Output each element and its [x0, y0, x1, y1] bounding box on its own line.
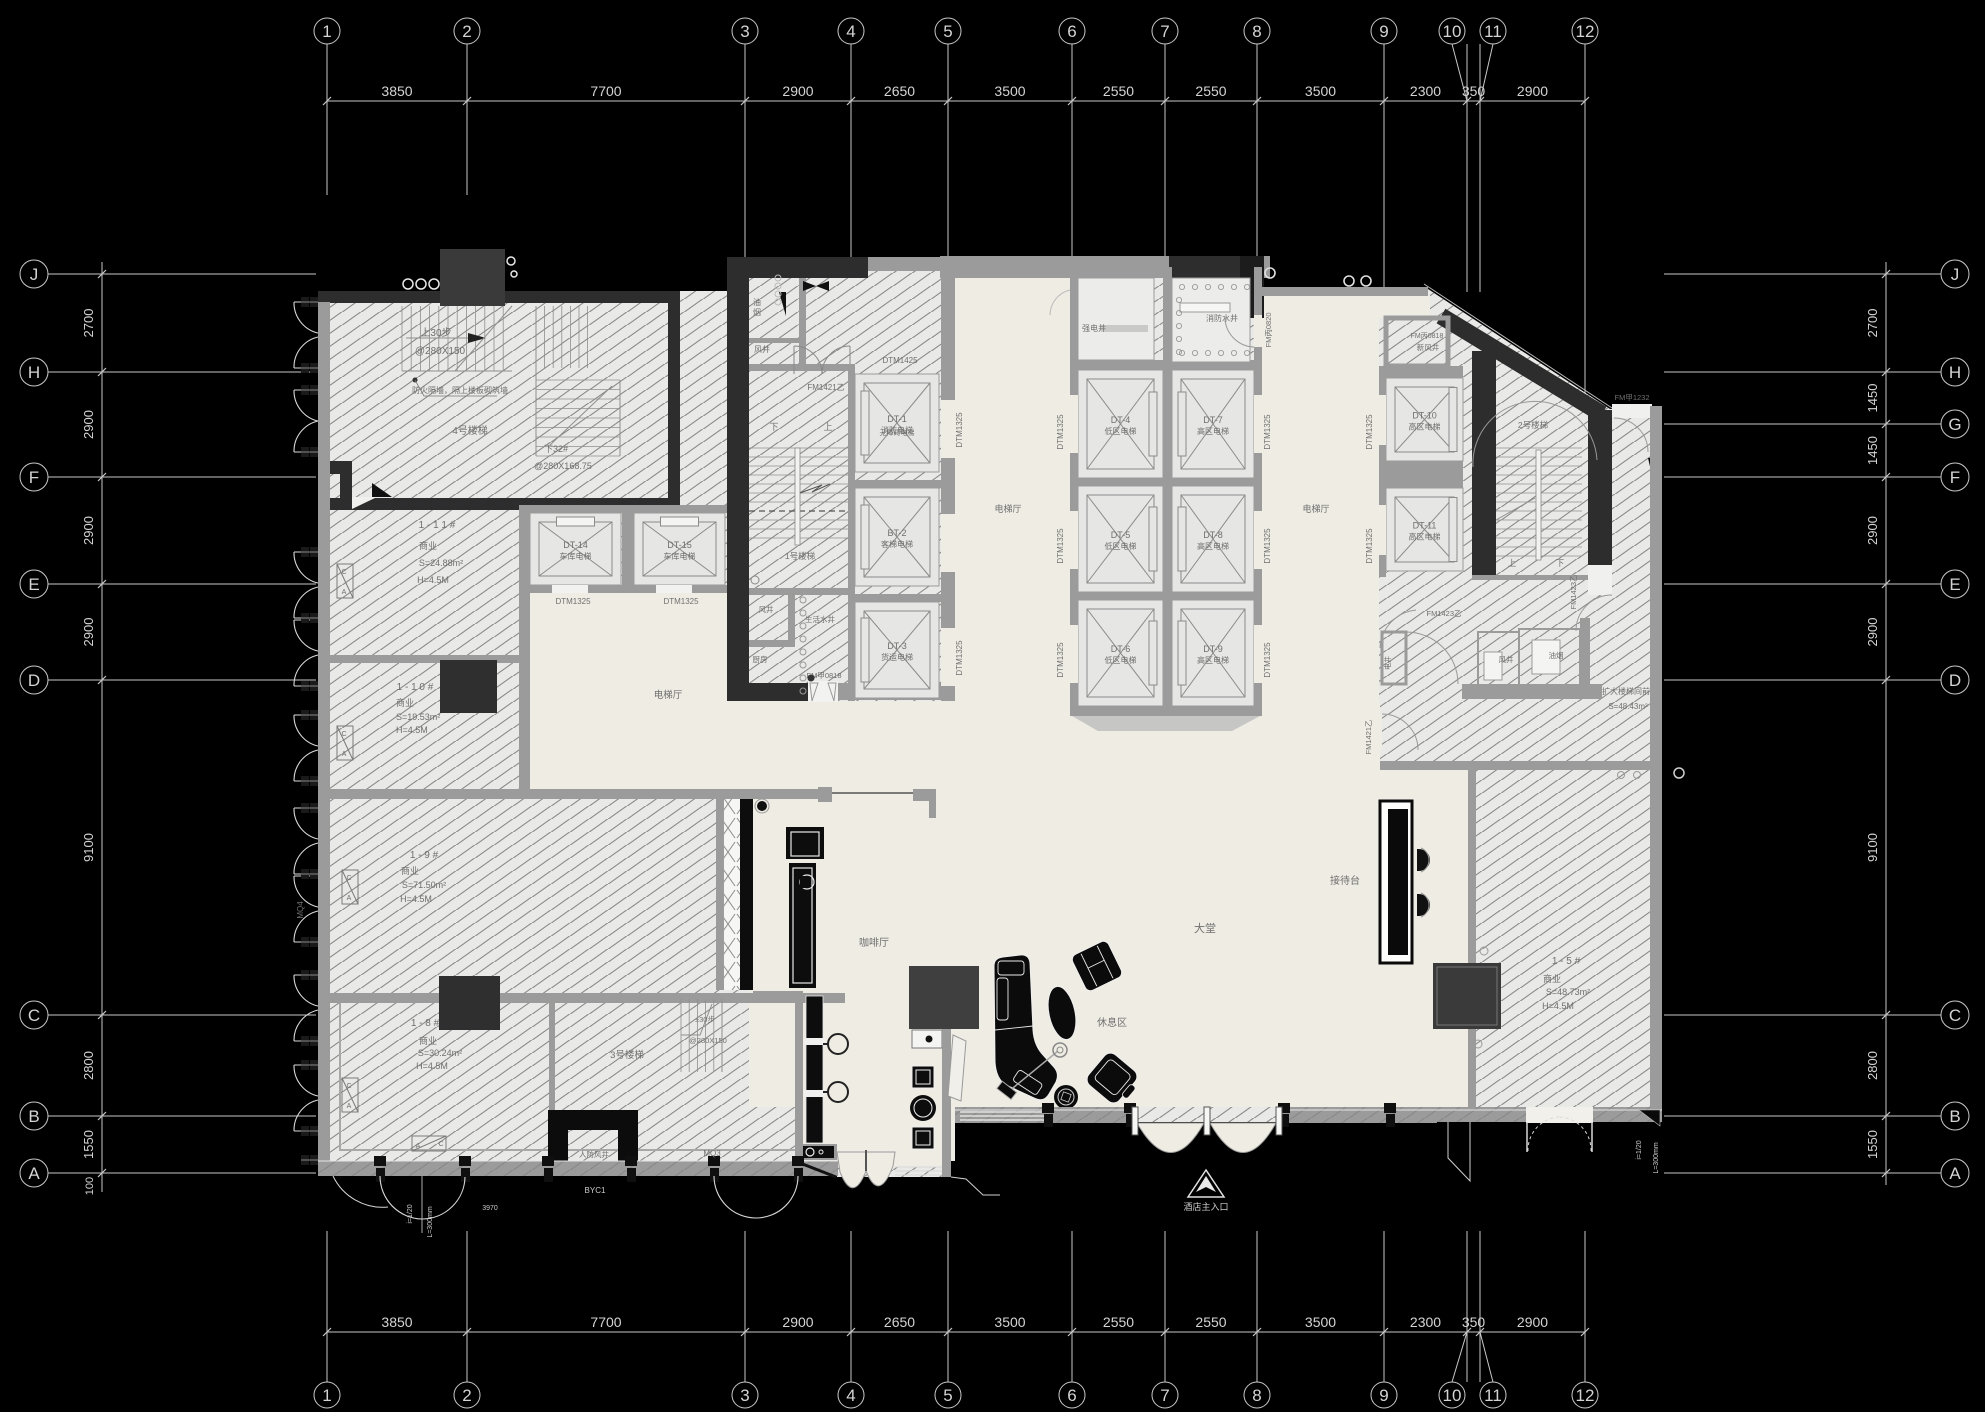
svg-text:11: 11 — [1484, 1386, 1502, 1405]
svg-text:DTM1325: DTM1325 — [955, 412, 964, 448]
svg-text:H=4.5M: H=4.5M — [416, 1061, 448, 1071]
svg-text:DT-14: DT-14 — [563, 540, 588, 550]
svg-text:J: J — [30, 265, 39, 284]
svg-text:电梯厅: 电梯厅 — [994, 503, 1021, 514]
svg-text:2900: 2900 — [1865, 516, 1880, 545]
svg-text:DT-1: DT-1 — [887, 414, 907, 424]
svg-text:商业: 商业 — [419, 540, 437, 551]
svg-text:商业: 商业 — [419, 1035, 437, 1046]
svg-text:6: 6 — [1067, 22, 1076, 41]
svg-text:上30步: 上30步 — [420, 327, 451, 339]
svg-text:生活水井: 生活水井 — [805, 614, 835, 624]
svg-text:FM1421乙: FM1421乙 — [807, 383, 844, 392]
svg-text:车库电梯: 车库电梯 — [560, 551, 592, 561]
svg-text:A: A — [347, 1103, 352, 1110]
svg-text:DTM1325: DTM1325 — [663, 597, 699, 606]
svg-text:FM丙0818: FM丙0818 — [1411, 332, 1444, 340]
svg-text:上: 上 — [823, 422, 832, 432]
svg-text:S=48.43m²: S=48.43m² — [1608, 702, 1648, 711]
svg-text:低区电梯: 低区电梯 — [1105, 541, 1137, 551]
svg-text:高区电梯: 高区电梯 — [1409, 532, 1441, 542]
svg-text:防火隔墙，隔上楼板砌筑墙: 防火隔墙，隔上楼板砌筑墙 — [412, 385, 508, 395]
svg-text:7700: 7700 — [590, 83, 621, 99]
svg-text:2650: 2650 — [884, 83, 915, 99]
svg-text:风井: 风井 — [1499, 654, 1515, 664]
svg-text:2700: 2700 — [81, 309, 96, 338]
svg-text:DT-4: DT-4 — [1111, 415, 1131, 425]
svg-text:DTM1325: DTM1325 — [1365, 414, 1374, 450]
svg-text:7: 7 — [1160, 1386, 1169, 1405]
svg-text:MQ4: MQ4 — [296, 901, 305, 919]
svg-text:@280X168.75: @280X168.75 — [534, 461, 592, 471]
svg-text:2650: 2650 — [884, 1314, 915, 1330]
svg-text:C: C — [346, 1083, 351, 1090]
svg-text:FM甲1232: FM甲1232 — [1614, 393, 1649, 402]
svg-text:下: 下 — [769, 422, 778, 432]
svg-text:E: E — [1949, 575, 1960, 594]
svg-text:电梯厅: 电梯厅 — [1302, 503, 1329, 514]
svg-text:2800: 2800 — [81, 1051, 96, 1080]
svg-text:商业: 商业 — [396, 697, 414, 708]
svg-text:上: 上 — [1508, 558, 1517, 568]
svg-text:货运电梯: 货运电梯 — [881, 652, 913, 662]
svg-text:消防水井: 消防水井 — [1206, 313, 1238, 323]
svg-text:接待台: 接待台 — [1330, 874, 1360, 887]
svg-text:1号楼梯: 1号楼梯 — [785, 551, 816, 561]
svg-text:3: 3 — [740, 1386, 749, 1405]
svg-text:F: F — [29, 468, 39, 487]
svg-text:8: 8 — [1252, 1386, 1261, 1405]
svg-text:4: 4 — [846, 22, 855, 41]
svg-text:9100: 9100 — [81, 833, 96, 862]
svg-text:D: D — [28, 671, 40, 690]
svg-text:DTM1325: DTM1325 — [1056, 528, 1065, 564]
svg-text:4号楼梯: 4号楼梯 — [452, 424, 488, 437]
svg-text:无障碍电梯: 无障碍电梯 — [880, 428, 915, 437]
svg-text:电井: 电井 — [1383, 656, 1392, 670]
svg-text:A: A — [1949, 1164, 1961, 1183]
svg-text:2: 2 — [462, 22, 471, 41]
svg-text:H=4.5M: H=4.5M — [417, 575, 449, 585]
svg-text:1 - 1 0 #: 1 - 1 0 # — [397, 682, 434, 693]
svg-text:烟: 烟 — [753, 308, 761, 317]
svg-text:2: 2 — [462, 1386, 471, 1405]
svg-text:3850: 3850 — [381, 83, 412, 99]
svg-text:DTM1325: DTM1325 — [1365, 528, 1374, 564]
svg-text:2900: 2900 — [782, 1314, 813, 1330]
svg-text:DTM1325: DTM1325 — [1056, 414, 1065, 450]
svg-text:S=30.24m²: S=30.24m² — [418, 1048, 462, 1058]
svg-text:2900: 2900 — [1517, 83, 1548, 99]
svg-text:8: 8 — [1252, 22, 1261, 41]
svg-text:低区电梯: 低区电梯 — [1105, 426, 1137, 436]
svg-text:商业: 商业 — [401, 865, 419, 876]
svg-text:5: 5 — [943, 1386, 952, 1405]
svg-text:11: 11 — [1484, 22, 1502, 41]
svg-text:DTM1325: DTM1325 — [1263, 642, 1272, 678]
svg-text:S=19.53m²: S=19.53m² — [396, 712, 440, 722]
svg-text:DTM1325: DTM1325 — [1263, 528, 1272, 564]
svg-text:DT-7: DT-7 — [1203, 415, 1223, 425]
svg-text:L=300mm: L=300mm — [427, 1206, 434, 1237]
svg-text:扩大楼梯间前室: 扩大楼梯间前室 — [1602, 686, 1658, 696]
svg-text:J: J — [1951, 265, 1960, 284]
svg-text:1 - 5 #: 1 - 5 # — [1552, 956, 1581, 967]
svg-text:咖啡厅: 咖啡厅 — [859, 937, 889, 949]
svg-text:下: 下 — [1556, 558, 1565, 568]
svg-text:2300: 2300 — [1410, 1314, 1441, 1330]
svg-text:7700: 7700 — [590, 1314, 621, 1330]
svg-text:2900: 2900 — [81, 516, 96, 545]
svg-text:C: C — [1949, 1006, 1961, 1025]
svg-text:E: E — [28, 575, 39, 594]
svg-text:D: D — [1949, 671, 1961, 690]
svg-text:油烟: 油烟 — [1549, 650, 1564, 660]
svg-text:2550: 2550 — [1195, 83, 1226, 99]
svg-text:1: 1 — [322, 22, 331, 41]
svg-text:风井: 风井 — [754, 344, 770, 354]
svg-text:10: 10 — [1443, 1386, 1462, 1405]
svg-text:下32#: 下32# — [544, 444, 568, 454]
svg-text:±30步: ±30步 — [695, 1015, 715, 1024]
svg-text:高区电梯: 高区电梯 — [1197, 426, 1229, 436]
svg-text:FM1423乙: FM1423乙 — [1426, 609, 1462, 618]
svg-text:C: C — [341, 731, 346, 738]
svg-text:3850: 3850 — [381, 1314, 412, 1330]
svg-text:B: B — [28, 1107, 39, 1126]
svg-text:1 - 1 1 #: 1 - 1 1 # — [419, 520, 456, 531]
svg-text:C: C — [341, 569, 346, 576]
svg-text:F: F — [1950, 468, 1960, 487]
svg-text:3号楼梯: 3号楼梯 — [610, 1049, 644, 1061]
svg-text:油: 油 — [753, 297, 761, 307]
svg-text:3500: 3500 — [994, 1314, 1025, 1330]
svg-text:1: 1 — [322, 1386, 331, 1405]
svg-text:电梯厅: 电梯厅 — [654, 689, 683, 701]
svg-text:2900: 2900 — [1865, 618, 1880, 647]
svg-text:高区电梯: 高区电梯 — [1197, 655, 1229, 665]
svg-text:4: 4 — [846, 1386, 855, 1405]
svg-text:3500: 3500 — [1305, 1314, 1336, 1330]
svg-text:2550: 2550 — [1103, 1314, 1134, 1330]
svg-text:350: 350 — [1462, 1314, 1486, 1330]
svg-text:DTM1425: DTM1425 — [882, 356, 918, 365]
svg-text:A: A — [342, 751, 347, 758]
svg-text:2号楼梯: 2号楼梯 — [1518, 420, 1549, 430]
svg-text:100: 100 — [84, 1177, 96, 1195]
svg-text:S=48.73m²: S=48.73m² — [1546, 987, 1590, 997]
svg-text:1 - 8 #: 1 - 8 # — [411, 1018, 440, 1029]
svg-text:3500: 3500 — [994, 83, 1025, 99]
svg-text:1550: 1550 — [81, 1130, 96, 1159]
svg-text:@280X150: @280X150 — [415, 346, 466, 357]
svg-text:@280X150: @280X150 — [689, 1036, 727, 1045]
svg-text:10: 10 — [1443, 22, 1462, 41]
svg-text:3: 3 — [740, 22, 749, 41]
svg-text:9: 9 — [1379, 22, 1388, 41]
svg-text:2900: 2900 — [81, 618, 96, 647]
svg-text:C: C — [346, 875, 351, 882]
svg-text:FM丙0820: FM丙0820 — [1264, 312, 1273, 347]
svg-text:2550: 2550 — [1103, 83, 1134, 99]
svg-text:DTM1325: DTM1325 — [1056, 642, 1065, 678]
svg-text:7: 7 — [1160, 22, 1169, 41]
svg-text:6: 6 — [1067, 1386, 1076, 1405]
svg-text:DTM1325: DTM1325 — [555, 597, 591, 606]
svg-text:休息区: 休息区 — [1097, 1016, 1127, 1029]
svg-text:A: A — [416, 1143, 421, 1150]
svg-text:1550: 1550 — [1865, 1130, 1880, 1159]
svg-text:H: H — [28, 363, 40, 382]
svg-text:H=4.5M: H=4.5M — [400, 894, 432, 904]
svg-text:新风井: 新风井 — [1417, 342, 1440, 352]
svg-text:A: A — [28, 1164, 40, 1183]
svg-text:BT-2: BT-2 — [887, 528, 906, 538]
svg-text:3970: 3970 — [482, 1205, 498, 1212]
svg-text:3500: 3500 — [1305, 83, 1336, 99]
svg-text:S=24.88m²: S=24.88m² — [419, 558, 463, 568]
svg-text:B: B — [1949, 1107, 1960, 1126]
svg-text:2900: 2900 — [81, 410, 96, 439]
svg-text:1450: 1450 — [1865, 436, 1880, 465]
svg-text:DT-6: DT-6 — [1111, 644, 1131, 654]
svg-text:2300: 2300 — [1410, 83, 1441, 99]
svg-text:H: H — [1949, 363, 1961, 382]
svg-text:9: 9 — [1379, 1386, 1388, 1405]
svg-text:酒店主入口: 酒店主入口 — [1183, 1201, 1228, 1212]
svg-text:2900: 2900 — [782, 83, 813, 99]
svg-text:9100: 9100 — [1865, 833, 1880, 862]
svg-text:DT-10: DT-10 — [1412, 411, 1437, 421]
svg-text:大堂: 大堂 — [1194, 921, 1216, 935]
svg-text:i=1/20: i=1/20 — [407, 1204, 414, 1223]
svg-text:DT-5: DT-5 — [1111, 530, 1131, 540]
svg-text:H=4.5M: H=4.5M — [396, 725, 428, 735]
svg-text:车库电梯: 车库电梯 — [664, 551, 696, 561]
svg-text:DTM1325: DTM1325 — [1263, 414, 1272, 450]
svg-text:i=1/20: i=1/20 — [1636, 1140, 1643, 1159]
svg-text:5: 5 — [943, 22, 952, 41]
svg-text:1450: 1450 — [1865, 384, 1880, 413]
svg-text:DT-11: DT-11 — [1413, 521, 1437, 531]
svg-text:FM1421乙: FM1421乙 — [1364, 719, 1373, 755]
svg-text:2700: 2700 — [1865, 309, 1880, 338]
svg-text:2900: 2900 — [1517, 1314, 1548, 1330]
svg-text:A: A — [342, 589, 347, 596]
svg-text:2800: 2800 — [1865, 1051, 1880, 1080]
svg-text:客梯电梯: 客梯电梯 — [881, 539, 913, 549]
svg-text:高区电梯: 高区电梯 — [1409, 422, 1441, 432]
svg-text:DT-15: DT-15 — [667, 540, 692, 550]
svg-text:A: A — [347, 895, 352, 902]
svg-text:C: C — [438, 1141, 443, 1148]
svg-text:厨房: 厨房 — [753, 654, 768, 664]
svg-text:强电井: 强电井 — [1082, 323, 1106, 333]
svg-text:12: 12 — [1576, 22, 1595, 41]
svg-text:高区电梯: 高区电梯 — [1197, 541, 1229, 551]
svg-text:12: 12 — [1576, 1386, 1595, 1405]
svg-text:风井: 风井 — [759, 604, 774, 614]
svg-text:H=4.5M: H=4.5M — [1542, 1001, 1574, 1011]
svg-text:C: C — [28, 1006, 40, 1025]
svg-text:人防风井: 人防风井 — [579, 1149, 609, 1159]
svg-text:S=71.50m²: S=71.50m² — [402, 880, 446, 890]
svg-text:DT-3: DT-3 — [887, 641, 907, 651]
svg-text:商业: 商业 — [1543, 973, 1561, 984]
svg-text:2550: 2550 — [1195, 1314, 1226, 1330]
svg-text:DT-9: DT-9 — [1203, 644, 1223, 654]
svg-text:G: G — [1948, 415, 1961, 434]
svg-text:BYC1: BYC1 — [585, 1186, 606, 1195]
svg-text:DTM1325: DTM1325 — [955, 640, 964, 676]
svg-text:L=300mm: L=300mm — [1653, 1142, 1660, 1173]
svg-text:MQ3: MQ3 — [703, 1149, 721, 1158]
svg-text:1 - 9 #: 1 - 9 # — [410, 850, 439, 861]
svg-text:DT-8: DT-8 — [1203, 530, 1223, 540]
svg-text:低区电梯: 低区电梯 — [1105, 655, 1137, 665]
svg-text:FM1423乙: FM1423乙 — [1569, 574, 1578, 610]
